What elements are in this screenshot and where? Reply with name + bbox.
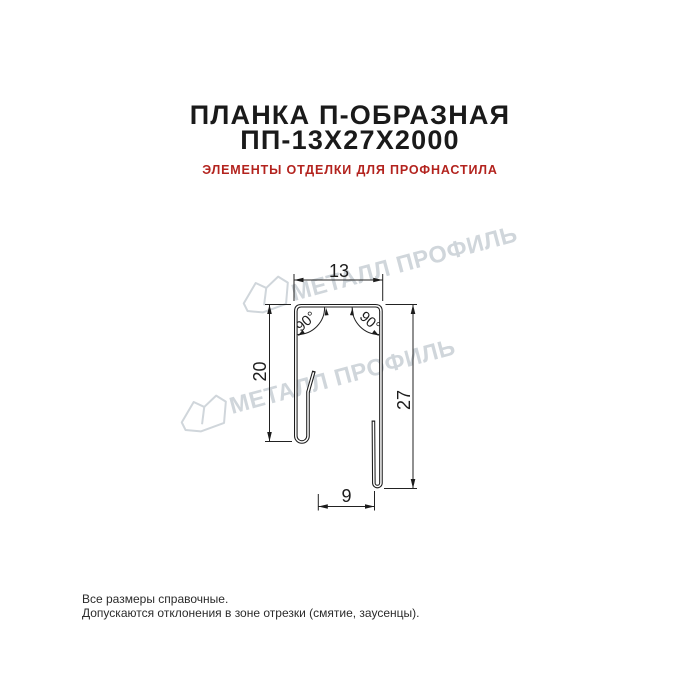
dim-label-bottom-width: 9	[341, 486, 351, 506]
angle-label-right: 90°	[356, 309, 383, 335]
metall-profil-logo-icon	[179, 395, 228, 434]
dim-label-top-width: 13	[329, 261, 349, 281]
watermark-upper: МЕТАЛЛ ПРОФИЛЬ	[241, 220, 520, 314]
watermark-lower: МЕТАЛЛ ПРОФИЛЬ	[179, 333, 458, 433]
dim-label-right-height: 27	[394, 390, 414, 410]
footer-note-line1: Все размеры справочные.	[82, 592, 419, 606]
profile-cross-section	[296, 306, 381, 487]
dimension-right-height: 27	[384, 305, 417, 489]
product-drawing-page: ПЛАНКА П-ОБРАЗНАЯ ПП-13Х27Х2000 ЭЛЕМЕНТЫ…	[0, 0, 700, 700]
watermark-text: МЕТАЛЛ ПРОФИЛЬ	[289, 220, 521, 305]
angle-annotations: 90° 90°	[293, 308, 383, 338]
dim-label-left-height: 20	[250, 361, 270, 381]
footer-notes: Все размеры справочные. Допускаются откл…	[82, 592, 419, 620]
dimension-left-height: 20	[250, 305, 292, 442]
profile-core	[296, 306, 381, 487]
metall-profil-logo-icon	[241, 276, 290, 315]
dimension-bottom-width: 9	[318, 486, 374, 511]
footer-note-line2: Допускаются отклонения в зоне отрезки (с…	[82, 606, 419, 620]
